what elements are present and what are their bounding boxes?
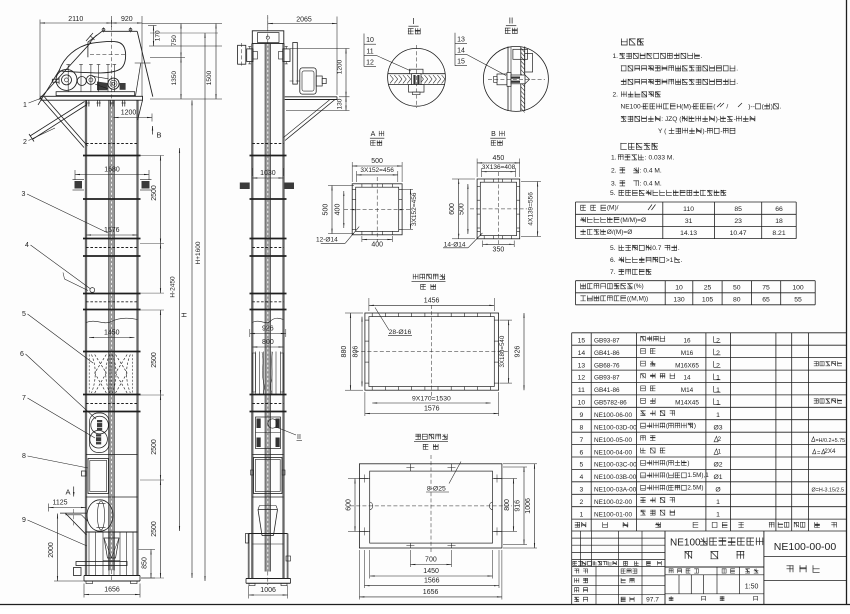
svg-text:)--: )--: [748, 103, 755, 110]
svg-text:1.: 1.: [613, 53, 619, 60]
svg-text:): ): [694, 423, 696, 430]
svg-text:.: .: [780, 103, 782, 110]
svg-text:800: 800: [504, 499, 511, 511]
svg-text:25: 25: [704, 284, 712, 291]
svg-text:1030: 1030: [260, 170, 276, 177]
svg-text:65: 65: [762, 296, 770, 303]
svg-text:GB93-87: GB93-87: [594, 338, 620, 345]
svg-text:GB93-87: GB93-87: [594, 375, 620, 382]
svg-text:II: II: [297, 434, 301, 441]
svg-text:3: 3: [580, 487, 584, 494]
svg-text:2110: 2110: [68, 16, 83, 23]
svg-text:5.: 5.: [610, 190, 616, 197]
svg-text:130: 130: [337, 98, 344, 109]
svg-text:1450: 1450: [104, 330, 120, 337]
svg-text:: 0.033 M.: : 0.033 M.: [645, 154, 675, 161]
svg-text:: JZQ (: : JZQ (: [661, 116, 682, 123]
svg-text:H(M)--: H(M)--: [676, 103, 695, 110]
svg-text:I: I: [412, 17, 414, 26]
svg-text:450: 450: [493, 155, 505, 162]
svg-text:1: 1: [23, 102, 27, 109]
svg-text:850: 850: [142, 557, 149, 569]
svg-text:400: 400: [334, 204, 341, 216]
svg-text:1125: 1125: [52, 500, 67, 507]
svg-text:1566: 1566: [424, 578, 440, 585]
svg-text:A: A: [371, 131, 376, 138]
svg-text:.: .: [678, 245, 680, 252]
svg-text:Ø1: Ø1: [713, 474, 722, 481]
svg-text:170: 170: [155, 30, 162, 41]
svg-text:GB41-86: GB41-86: [594, 387, 620, 394]
svg-text:Ø/(M)=Ø: Ø/(M)=Ø: [607, 229, 632, 236]
svg-text:H: H: [182, 312, 189, 317]
svg-text:80: 80: [733, 296, 741, 303]
svg-text:28-Ø16: 28-Ø16: [389, 329, 412, 336]
svg-text:GB5782-86: GB5782-86: [594, 400, 627, 407]
svg-text:A: A: [65, 488, 70, 497]
svg-text:75: 75: [762, 284, 770, 291]
svg-text:NE100: NE100: [670, 538, 701, 549]
svg-text:500: 500: [323, 204, 330, 216]
svg-text:1.5M),1: 1.5M),1: [687, 472, 709, 479]
svg-text:130: 130: [673, 296, 685, 303]
svg-text:Ø=H-3.15/2.5: Ø=H-3.15/2.5: [812, 488, 845, 494]
svg-text:Y (: Y (: [658, 128, 667, 135]
svg-text:M14X45: M14X45: [675, 400, 699, 407]
svg-text:14: 14: [578, 350, 586, 357]
svg-text:NE100-04-00: NE100-04-00: [594, 449, 632, 456]
svg-text:1500: 1500: [206, 70, 213, 85]
svg-text:NE100-03A-00: NE100-03A-00: [594, 487, 637, 494]
svg-text:(%): (%): [634, 283, 644, 290]
svg-text:66: 66: [775, 206, 783, 213]
svg-text:350: 350: [493, 247, 505, 254]
svg-text:II: II: [509, 17, 513, 26]
svg-text:6.: 6.: [610, 257, 616, 264]
svg-text:3X136=408: 3X136=408: [482, 164, 516, 171]
svg-text:8.21: 8.21: [772, 230, 785, 237]
svg-text:0.7: 0.7: [652, 245, 662, 252]
svg-text:1:50: 1:50: [745, 583, 759, 590]
svg-text:1576: 1576: [424, 406, 440, 413]
svg-text:1: 1: [716, 412, 720, 419]
svg-text:15: 15: [578, 338, 586, 345]
svg-text:1576: 1576: [104, 227, 120, 234]
svg-text:7.: 7.: [610, 269, 616, 276]
svg-text:3.: 3.: [611, 180, 617, 187]
svg-text:10: 10: [578, 400, 586, 407]
svg-text:1200: 1200: [337, 59, 344, 74]
svg-text:1680: 1680: [104, 167, 120, 174]
svg-text:.: .: [736, 79, 738, 86]
svg-text:3X152=456: 3X152=456: [360, 167, 394, 174]
svg-text:NE100-03D-00: NE100-03D-00: [594, 424, 637, 431]
svg-text:12: 12: [366, 59, 374, 66]
svg-text:926: 926: [514, 346, 521, 358]
svg-text:2500: 2500: [151, 439, 158, 455]
svg-text:806: 806: [353, 346, 360, 358]
svg-text:1: 1: [716, 400, 720, 407]
svg-text:): ): [771, 103, 773, 110]
svg-text:1006: 1006: [260, 587, 276, 594]
svg-text:B: B: [491, 131, 496, 138]
svg-text:13: 13: [457, 37, 465, 44]
svg-text:12: 12: [578, 375, 586, 382]
svg-text:1456: 1456: [424, 298, 440, 305]
svg-text:800: 800: [262, 339, 274, 346]
svg-text:100: 100: [792, 284, 804, 291]
svg-text:): ): [687, 460, 689, 467]
svg-text:NE100-00-00: NE100-00-00: [774, 541, 837, 553]
svg-text:18: 18: [775, 218, 783, 225]
svg-text:2.: 2.: [611, 167, 617, 174]
svg-text:2: 2: [716, 338, 720, 345]
svg-text:12-Ø14: 12-Ø14: [316, 237, 338, 244]
svg-text:3X180=540: 3X180=540: [499, 335, 506, 367]
svg-text:1: 1: [716, 499, 720, 506]
svg-text:14: 14: [683, 375, 691, 382]
svg-text:105: 105: [702, 296, 714, 303]
svg-text:5: 5: [580, 462, 584, 469]
svg-text:-: -: [734, 116, 736, 123]
svg-text:1: 1: [716, 387, 720, 394]
svg-text:Ø3: Ø3: [713, 424, 722, 431]
svg-text:400: 400: [371, 242, 383, 249]
svg-text:2065: 2065: [296, 17, 312, 24]
svg-text:2000: 2000: [48, 542, 55, 558]
svg-text:Ø2: Ø2: [713, 462, 722, 469]
svg-text:7: 7: [22, 395, 26, 402]
svg-text:B: B: [157, 131, 162, 140]
svg-text:=H/0.2+5.75: =H/0.2+5.75: [816, 438, 846, 444]
svg-text:15: 15: [457, 59, 465, 66]
svg-text:9: 9: [22, 517, 26, 524]
svg-text:1450: 1450: [423, 568, 439, 575]
svg-text:600: 600: [449, 203, 456, 215]
svg-text:1: 1: [718, 449, 722, 456]
svg-text:NE100--: NE100--: [621, 103, 646, 110]
svg-text:(M/M)=Ø: (M/M)=Ø: [620, 217, 646, 224]
svg-text:2500: 2500: [151, 521, 158, 537]
svg-text:8: 8: [580, 424, 584, 431]
svg-text:2500: 2500: [151, 185, 158, 201]
svg-text:13: 13: [578, 362, 586, 369]
svg-text:2.5M): 2.5M): [687, 485, 703, 492]
svg-text:926: 926: [262, 326, 274, 333]
svg-text:7: 7: [580, 437, 584, 444]
svg-text:9: 9: [580, 412, 584, 419]
svg-text:.: .: [681, 257, 683, 264]
svg-text:8-Ø25: 8-Ø25: [427, 486, 446, 493]
svg-text:916: 916: [515, 500, 522, 512]
svg-text:: 0.4 M.: : 0.4 M.: [640, 180, 662, 187]
svg-text:2: 2: [23, 139, 27, 146]
svg-text:23: 23: [734, 218, 742, 225]
svg-text:2500: 2500: [151, 352, 158, 368]
svg-text:6: 6: [20, 351, 24, 358]
svg-text:1006: 1006: [525, 498, 532, 514]
svg-text:)-: )-: [716, 116, 720, 123]
svg-text:3X152=456: 3X152=456: [411, 192, 418, 226]
svg-text:50: 50: [733, 284, 741, 291]
svg-text:500: 500: [458, 203, 465, 215]
svg-text:((M,M)): ((M,M)): [627, 295, 648, 302]
svg-text:920: 920: [121, 16, 133, 23]
svg-text:NE100-06-00: NE100-06-00: [594, 412, 632, 419]
svg-text:500: 500: [371, 158, 383, 165]
svg-text:)-: )-: [702, 128, 706, 135]
svg-text:55: 55: [794, 296, 802, 303]
svg-text:NE100-01-00: NE100-01-00: [594, 511, 632, 518]
svg-text:880: 880: [341, 346, 348, 358]
svg-text:2: 2: [580, 499, 584, 506]
svg-text:>1: >1: [666, 257, 674, 264]
svg-text:NE100-03C-00: NE100-03C-00: [594, 462, 637, 469]
svg-text:14: 14: [457, 48, 465, 55]
svg-text:110: 110: [683, 206, 694, 213]
svg-text:5.: 5.: [610, 245, 616, 252]
svg-text:16: 16: [683, 338, 691, 345]
svg-text:8: 8: [22, 453, 26, 460]
svg-text:M16X65: M16X65: [675, 362, 699, 369]
svg-text:6: 6: [580, 449, 584, 456]
svg-text:4X139=556: 4X139=556: [528, 192, 535, 226]
svg-text:H-2450: H-2450: [170, 276, 177, 298]
svg-text:1656: 1656: [104, 587, 120, 594]
svg-text:11: 11: [578, 387, 585, 394]
svg-text:4: 4: [25, 242, 29, 249]
svg-text:1.: 1.: [611, 154, 617, 161]
svg-text:NE100-02-00: NE100-02-00: [594, 499, 632, 506]
svg-text:: 0.4 M.: : 0.4 M.: [640, 167, 662, 174]
svg-text:GB68-76: GB68-76: [594, 362, 620, 369]
svg-text:M16: M16: [681, 350, 694, 357]
svg-text:2.: 2.: [613, 91, 619, 98]
svg-text:700: 700: [425, 557, 437, 564]
svg-text:97.7: 97.7: [646, 596, 659, 603]
svg-text:M14: M14: [681, 387, 694, 394]
svg-text:5: 5: [22, 311, 26, 318]
svg-text:1350: 1350: [171, 71, 178, 86]
svg-text:11: 11: [366, 48, 373, 55]
svg-text:10: 10: [675, 284, 683, 291]
svg-text:NE100-03B-00: NE100-03B-00: [594, 474, 637, 481]
svg-text:14.13: 14.13: [680, 230, 697, 237]
svg-text:1656: 1656: [423, 589, 439, 596]
svg-text:(M)/: (M)/: [607, 205, 619, 212]
svg-text:1: 1: [716, 375, 720, 382]
svg-text:-: -: [720, 128, 722, 135]
svg-text:14-Ø14: 14-Ø14: [444, 242, 466, 249]
svg-text:10.47: 10.47: [730, 230, 747, 237]
svg-text:GB41-86: GB41-86: [594, 350, 620, 357]
svg-text:2: 2: [716, 362, 720, 369]
svg-text:.: .: [701, 53, 703, 60]
svg-text:3: 3: [22, 191, 26, 198]
svg-text:/: /: [726, 103, 728, 110]
svg-text:1: 1: [580, 511, 584, 518]
svg-text:10: 10: [366, 37, 374, 44]
svg-text:600: 600: [345, 499, 352, 511]
svg-text:Ø: Ø: [715, 487, 721, 494]
svg-text:2: 2: [716, 350, 720, 357]
svg-text:2: 2: [718, 436, 722, 443]
svg-text:NE100-05-00: NE100-05-00: [594, 437, 632, 444]
svg-text:4: 4: [580, 474, 584, 481]
svg-text:.: .: [736, 65, 738, 72]
svg-text:31: 31: [685, 218, 693, 225]
svg-text:1200: 1200: [121, 110, 137, 117]
svg-text:9X170=1530: 9X170=1530: [412, 395, 451, 402]
svg-text:750: 750: [171, 35, 178, 46]
svg-text:2X4: 2X4: [824, 448, 836, 455]
svg-text:85: 85: [734, 206, 742, 213]
svg-text:1: 1: [716, 511, 720, 518]
svg-text:H+1600: H+1600: [195, 241, 202, 264]
